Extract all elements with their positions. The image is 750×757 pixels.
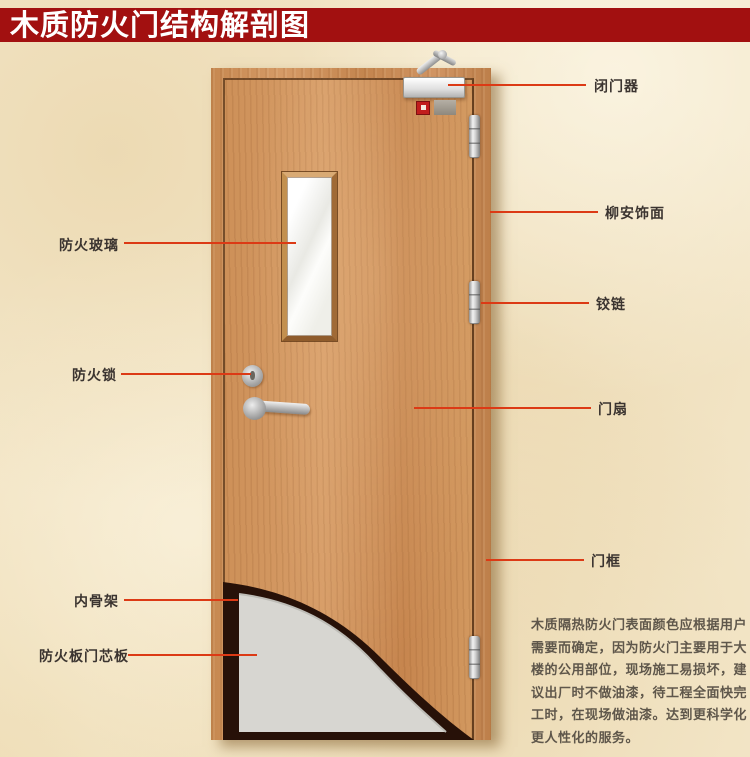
label-door-leaf: 门扇 — [598, 399, 628, 419]
alarm-indicator-icon — [416, 101, 430, 115]
cutaway-section — [222, 573, 475, 740]
door-frame-illustration — [211, 68, 491, 740]
label-inner-skeleton: 内骨架 — [74, 591, 119, 611]
callout-line-fire-board-core — [128, 654, 257, 656]
callout-line-inner-skeleton — [124, 599, 238, 601]
description-line: 楼的公用部位，现场施工易损坏，建 — [531, 660, 750, 683]
description-line: 更人性化的服务。 — [531, 728, 750, 751]
hinge-middle-icon — [469, 281, 480, 324]
label-lauan-veneer: 柳安饰面 — [605, 203, 665, 223]
callout-line-door-leaf — [414, 407, 591, 409]
callout-line-door-closer — [448, 84, 586, 86]
label-door-frame: 门框 — [591, 551, 621, 571]
description-line: 议出厂时不做油漆，待工程全面快完 — [531, 683, 750, 706]
door-closer-pivot-icon — [438, 50, 447, 59]
fire-glass-panel — [282, 172, 337, 341]
closer-plate-icon — [434, 100, 456, 115]
fire-door-diagram: 木质防火门结构解剖图 — [0, 0, 750, 757]
door-handle-rose-icon — [243, 397, 266, 420]
label-fire-glass: 防火玻璃 — [59, 235, 119, 255]
description-line: 工时，在现场做油漆。达到更科学化 — [531, 705, 750, 728]
page-title: 木质防火门结构解剖图 — [0, 8, 750, 42]
door-closer-body-icon — [403, 77, 465, 98]
callout-line-hinge — [481, 302, 589, 304]
description-paragraph: 木质隔热防火门表面颜色应根据用户 需要而确定，因为防火门主要用于大 楼的公用部位… — [531, 615, 750, 750]
alarm-indicator-light — [421, 105, 426, 110]
callout-line-lauan-veneer — [490, 211, 598, 213]
label-fire-board-core: 防火板门芯板 — [39, 646, 129, 666]
label-fire-lock: 防火锁 — [72, 365, 117, 385]
description-line: 需要而确定，因为防火门主要用于大 — [531, 638, 750, 661]
title-banner: 木质防火门结构解剖图 — [0, 8, 750, 42]
label-hinge: 铰链 — [596, 294, 626, 314]
hinge-top-icon — [469, 115, 480, 158]
label-door-closer: 闭门器 — [594, 76, 639, 96]
callout-line-fire-glass — [124, 242, 296, 244]
lock-cylinder-icon — [242, 365, 263, 387]
description-line: 木质隔热防火门表面颜色应根据用户 — [531, 615, 750, 638]
callout-line-door-frame — [486, 559, 584, 561]
fire-board-core-layer — [239, 594, 446, 732]
callout-line-fire-lock — [121, 373, 251, 375]
